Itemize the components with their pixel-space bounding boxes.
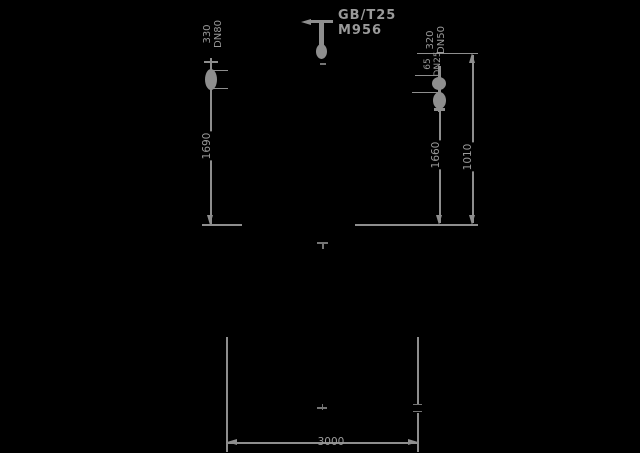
right-outer-dimension-line	[472, 55, 474, 223]
right-nozzle-body-upper	[432, 77, 446, 90]
center-nozzle-label-line2: M956	[338, 23, 382, 38]
right-nozzle-bottom-flange	[434, 108, 445, 111]
dimension-left-height: 1690	[201, 132, 213, 161]
left-dimension-line	[210, 98, 212, 224]
left-nozzle-label: 330 DN80	[202, 20, 224, 48]
baseline-right-segment	[355, 224, 478, 226]
bottom-extension-line-left	[226, 337, 228, 452]
center-nozzle-label-line1: GB/T25	[338, 8, 396, 23]
left-nozzle-body	[205, 69, 217, 90]
dimension-right-height: 1660	[430, 141, 442, 170]
baseline-left-segment	[202, 224, 242, 226]
right-nozzle-tick-lower	[412, 92, 438, 93]
left-nozzle-label-line2: DN80	[213, 20, 224, 48]
dimension-right-outer-height: 1010	[462, 143, 474, 172]
right-nozzle-upper-label-line1: 320	[425, 26, 436, 54]
dimension-bottom-width: 3000	[305, 436, 357, 448]
arrow-up-icon	[469, 53, 475, 63]
center-nozzle-body	[316, 44, 327, 59]
right-nozzle-body-lower	[433, 92, 446, 109]
arrow-left-icon	[227, 439, 237, 445]
left-nozzle-tick-upper	[212, 70, 228, 71]
centerline-mark-top-stem	[322, 243, 324, 249]
bottom-extension-line-right-lower	[417, 413, 419, 452]
right-nozzle-upper-label-line2: DN50	[436, 26, 447, 54]
bottom-extension-line-right-upper	[417, 337, 419, 405]
left-nozzle-tick-lower	[212, 88, 228, 89]
center-nozzle-tick	[320, 63, 326, 65]
extension-break-tick-upper	[413, 404, 422, 405]
right-nozzle-tick-upper	[415, 75, 438, 76]
extension-break-tick-lower	[413, 411, 422, 412]
technical-drawing-canvas: 330 DN80 1690 GB/T25 M956 320 DN50 65 DN…	[0, 0, 640, 453]
centerline-mark-bottom-stem	[322, 404, 324, 410]
arrow-right-icon	[408, 439, 418, 445]
right-nozzle-lower-label-line1: 65	[423, 51, 433, 76]
right-nozzle-upper-label: 320 DN50	[425, 26, 447, 54]
left-nozzle-label-line1: 330	[202, 20, 213, 48]
